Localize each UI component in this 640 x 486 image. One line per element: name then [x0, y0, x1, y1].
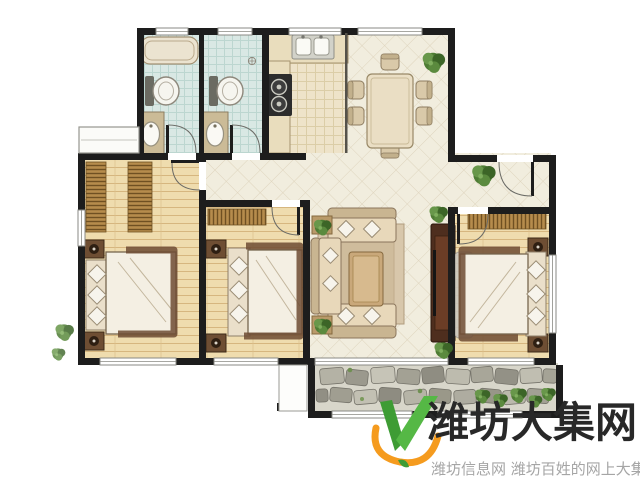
wardrobe: [128, 162, 152, 232]
floor-plan-image: 潍坊大集网 潍坊信息网 潍坊百姓的网上大集: [0, 0, 640, 486]
wardrobe: [468, 213, 546, 229]
coffee-table-top: [353, 256, 379, 302]
bay-window: [79, 127, 139, 153]
equipment-platform: [279, 365, 307, 411]
floor-drain-icon: [248, 57, 255, 64]
toilet: [145, 76, 179, 106]
bathtub: [141, 37, 198, 64]
wardrobe: [86, 162, 106, 232]
hallway: [202, 158, 310, 202]
vanity-sink: [203, 112, 228, 156]
wardrobe: [208, 209, 266, 225]
bed: [248, 250, 302, 334]
tv: [433, 250, 436, 316]
sofa-back: [328, 326, 396, 338]
toilet: [209, 76, 243, 106]
kitchen-partition: [345, 33, 348, 153]
watermark-tagline: 潍坊信息网 潍坊百姓的网上大集: [431, 458, 640, 479]
stove: [266, 74, 292, 116]
watermark-site-name: 潍坊大集网: [427, 400, 637, 446]
